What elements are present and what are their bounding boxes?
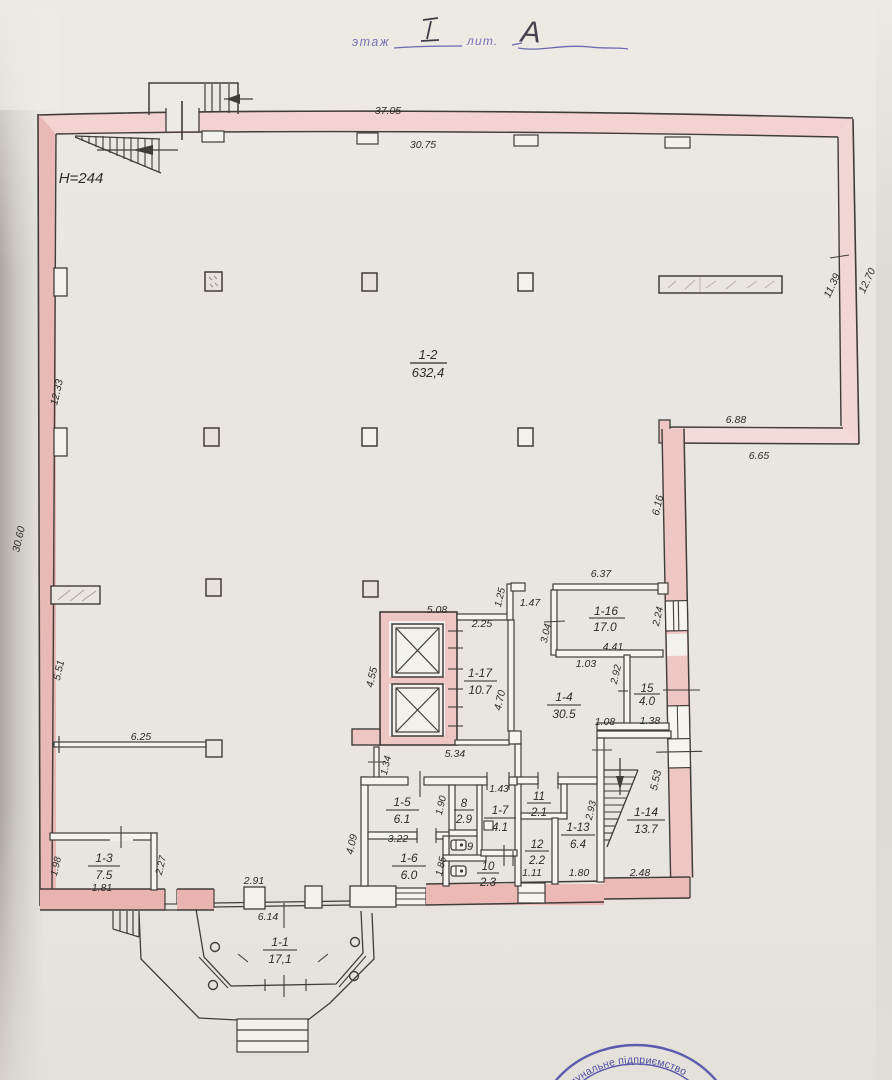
svg-text:1-17: 1-17 xyxy=(468,666,493,680)
svg-text:1-2: 1-2 xyxy=(419,347,439,362)
svg-text:37.05: 37.05 xyxy=(375,105,401,117)
svg-text:2.3: 2.3 xyxy=(479,877,497,889)
svg-text:10.7: 10.7 xyxy=(468,683,493,697)
svg-text:6.25: 6.25 xyxy=(131,731,152,743)
svg-text:1.43: 1.43 xyxy=(489,784,509,795)
svg-text:1.11: 1.11 xyxy=(522,867,542,879)
svg-text:1-3: 1-3 xyxy=(95,851,113,865)
svg-text:5.34: 5.34 xyxy=(445,748,466,760)
svg-text:A: A xyxy=(518,15,542,49)
svg-text:2.2: 2.2 xyxy=(528,855,546,867)
svg-text:1.08: 1.08 xyxy=(595,716,616,728)
svg-text:11: 11 xyxy=(533,791,545,803)
svg-text:15: 15 xyxy=(641,683,654,695)
svg-text:5.08: 5.08 xyxy=(427,604,448,616)
svg-text:12: 12 xyxy=(531,839,544,851)
svg-text:1.81: 1.81 xyxy=(92,882,112,894)
svg-text:6.37: 6.37 xyxy=(591,568,613,580)
svg-text:30.5: 30.5 xyxy=(552,707,576,721)
svg-text:17.0: 17.0 xyxy=(593,620,617,634)
svg-text:7.5: 7.5 xyxy=(96,868,113,882)
svg-text:1-6: 1-6 xyxy=(400,851,418,865)
svg-text:1.03: 1.03 xyxy=(576,658,597,670)
svg-text:1.80: 1.80 xyxy=(569,867,590,879)
svg-text:1-16: 1-16 xyxy=(594,604,618,618)
svg-text:H=244: H=244 xyxy=(59,170,104,187)
svg-text:1-7: 1-7 xyxy=(492,805,509,817)
svg-text:4.41: 4.41 xyxy=(603,641,623,653)
svg-text:этаж: этаж xyxy=(352,35,390,49)
svg-text:30.75: 30.75 xyxy=(410,139,436,151)
svg-text:6.4: 6.4 xyxy=(570,839,586,851)
svg-text:2.25: 2.25 xyxy=(471,618,493,630)
svg-text:6.1: 6.1 xyxy=(394,812,411,826)
svg-text:10: 10 xyxy=(482,861,495,873)
svg-text:6.0: 6.0 xyxy=(401,868,418,882)
svg-text:лит.: лит. xyxy=(466,34,498,48)
svg-text:1.47: 1.47 xyxy=(520,597,542,609)
svg-text:4.1: 4.1 xyxy=(492,822,508,834)
svg-text:2.48: 2.48 xyxy=(629,867,651,879)
svg-text:1-13: 1-13 xyxy=(566,822,590,834)
svg-text:6.88: 6.88 xyxy=(726,414,747,426)
svg-text:2.9: 2.9 xyxy=(455,814,473,826)
svg-text:17,1: 17,1 xyxy=(268,952,291,966)
svg-text:2.91: 2.91 xyxy=(243,875,264,887)
svg-text:6.14: 6.14 xyxy=(258,911,279,923)
svg-text:3.22: 3.22 xyxy=(388,833,409,845)
svg-text:1-4: 1-4 xyxy=(555,690,573,704)
svg-text:6.65: 6.65 xyxy=(749,450,770,462)
svg-text:1.38: 1.38 xyxy=(640,715,661,727)
svg-text:2.1: 2.1 xyxy=(530,807,547,819)
svg-text:4.0: 4.0 xyxy=(639,696,656,708)
svg-text:9: 9 xyxy=(467,841,473,853)
svg-text:1-1: 1-1 xyxy=(271,935,288,949)
svg-text:632,4: 632,4 xyxy=(412,365,445,380)
svg-text:13.7: 13.7 xyxy=(634,822,659,836)
svg-text:1-5: 1-5 xyxy=(393,795,411,809)
svg-text:8: 8 xyxy=(461,798,468,810)
svg-text:1-14: 1-14 xyxy=(634,805,658,819)
